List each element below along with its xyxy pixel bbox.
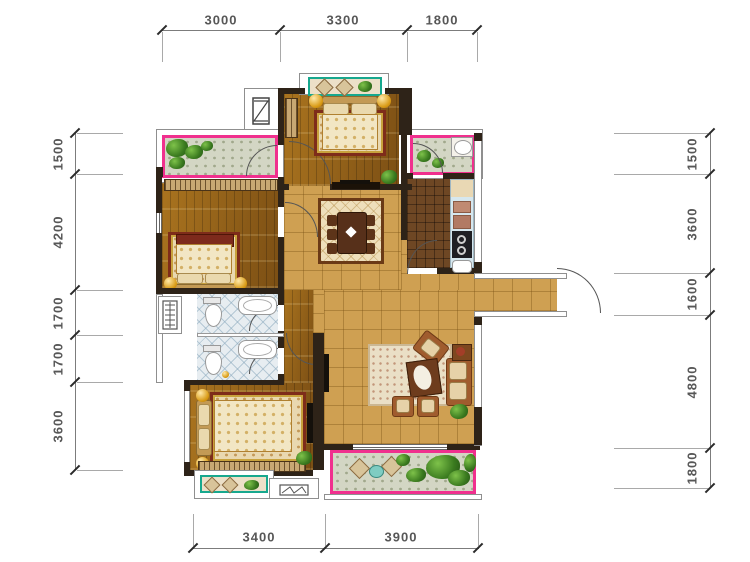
extension-line xyxy=(77,174,123,175)
wardrobe xyxy=(285,98,298,138)
flue-symbol-icon xyxy=(279,483,309,495)
entry-wall-bottom xyxy=(474,311,567,317)
plant-icon xyxy=(169,157,185,169)
wall xyxy=(184,380,284,385)
floor-plan: 3000 3300 1800 1500 4200 1700 1700 3600 … xyxy=(0,0,750,562)
double-bed xyxy=(322,114,378,150)
bedside-lamp xyxy=(309,94,323,108)
living-corridor-junction xyxy=(313,290,324,333)
cutting-board xyxy=(453,201,471,213)
wall xyxy=(278,88,284,145)
flue-symbol-icon xyxy=(252,97,270,125)
sofa-cushion xyxy=(449,382,467,400)
wall xyxy=(474,262,482,273)
dim-line-top xyxy=(162,30,478,31)
outer-wall xyxy=(474,133,482,273)
dim-label: 1800 xyxy=(685,452,700,485)
dim-label: 3600 xyxy=(51,410,66,443)
window xyxy=(156,213,162,233)
balcony-bottom-outer xyxy=(324,494,482,500)
plant-icon xyxy=(358,81,372,92)
wall xyxy=(156,173,162,213)
cutting-board xyxy=(453,215,471,229)
bed-pillow xyxy=(198,428,210,450)
plant-icon xyxy=(396,454,410,466)
wall xyxy=(278,237,284,288)
extension-line xyxy=(407,32,408,62)
dim-label: 1700 xyxy=(51,343,66,376)
dim-label: 3600 xyxy=(685,208,700,241)
bed-pillow xyxy=(177,273,203,284)
plant-icon xyxy=(406,468,426,482)
armchair-cushion xyxy=(421,399,435,413)
dim-line-left xyxy=(75,133,76,470)
plant-icon xyxy=(201,141,213,151)
wall xyxy=(313,333,324,470)
wall xyxy=(474,133,482,141)
wall xyxy=(156,288,284,294)
wall xyxy=(401,135,407,240)
plant-icon xyxy=(296,451,312,465)
extension-line xyxy=(478,514,479,546)
dining-chair xyxy=(327,229,337,240)
bed-pillow xyxy=(205,273,231,284)
extension-line xyxy=(77,133,123,134)
double-bed xyxy=(176,244,232,274)
toilet-tank xyxy=(203,297,221,304)
partition-wall xyxy=(197,333,284,337)
dim-label: 1500 xyxy=(685,138,700,171)
extension-line xyxy=(614,174,708,175)
entry-wall-top xyxy=(474,273,567,279)
tv xyxy=(324,354,329,392)
bowl xyxy=(456,347,465,356)
bathtub-basin xyxy=(243,343,272,356)
plant-icon xyxy=(381,170,397,184)
wall xyxy=(474,407,482,445)
dim-label: 3900 xyxy=(385,530,418,545)
extension-line xyxy=(477,32,478,62)
wall xyxy=(399,88,412,135)
wardrobe xyxy=(164,179,278,191)
extension-line xyxy=(325,514,326,546)
extension-line xyxy=(77,470,123,471)
dim-label: 3300 xyxy=(327,13,360,28)
extension-line xyxy=(77,335,123,336)
wall xyxy=(184,383,190,391)
tv xyxy=(340,180,370,184)
armchair-cushion xyxy=(396,399,410,413)
extension-line xyxy=(614,273,708,274)
wash-basin xyxy=(454,140,472,155)
plant-icon xyxy=(448,470,470,486)
dim-label: 1600 xyxy=(685,278,700,311)
plant-icon xyxy=(450,404,468,419)
bedside-lamp xyxy=(196,389,209,402)
entry-door-arc xyxy=(557,268,601,313)
bedside-lamp xyxy=(377,94,391,108)
dim-label: 3000 xyxy=(205,13,238,28)
stove-burner xyxy=(457,246,466,255)
dining-chair xyxy=(327,215,337,226)
dim-label: 1700 xyxy=(51,297,66,330)
dim-label: 4800 xyxy=(685,366,700,399)
stove-burner xyxy=(457,235,466,244)
extension-line xyxy=(162,32,163,62)
dim-line-right xyxy=(710,133,711,488)
dining-chair xyxy=(327,243,337,254)
dim-label: 3400 xyxy=(243,530,276,545)
shaft-symbol-icon xyxy=(162,300,178,330)
extension-line xyxy=(77,290,123,291)
kitchen-sink xyxy=(452,260,472,273)
dim-label: 4200 xyxy=(51,216,66,249)
extension-line xyxy=(193,514,194,546)
balcony-table xyxy=(369,465,384,478)
entry-floor xyxy=(474,279,557,311)
dim-label: 1800 xyxy=(426,13,459,28)
sofa-cushion xyxy=(449,362,467,380)
toilet-tank xyxy=(203,345,221,352)
dim-line-bottom xyxy=(193,548,479,549)
extension-line xyxy=(77,382,123,383)
bed-pillow xyxy=(198,404,210,426)
plant-icon xyxy=(464,454,476,472)
counter-top xyxy=(451,180,473,197)
extension-line xyxy=(614,133,708,134)
extension-line xyxy=(280,32,281,62)
tv xyxy=(307,403,313,443)
extension-line xyxy=(614,448,708,449)
plant-icon xyxy=(244,480,259,490)
dim-label: 1500 xyxy=(51,138,66,171)
extension-line xyxy=(614,315,708,316)
wall xyxy=(278,294,284,305)
wall xyxy=(156,233,162,295)
extension-line xyxy=(614,488,708,489)
wall xyxy=(278,177,284,207)
double-bed xyxy=(214,400,292,452)
floor-drain xyxy=(222,371,229,378)
bathtub-basin xyxy=(243,299,272,312)
wall xyxy=(284,184,289,190)
